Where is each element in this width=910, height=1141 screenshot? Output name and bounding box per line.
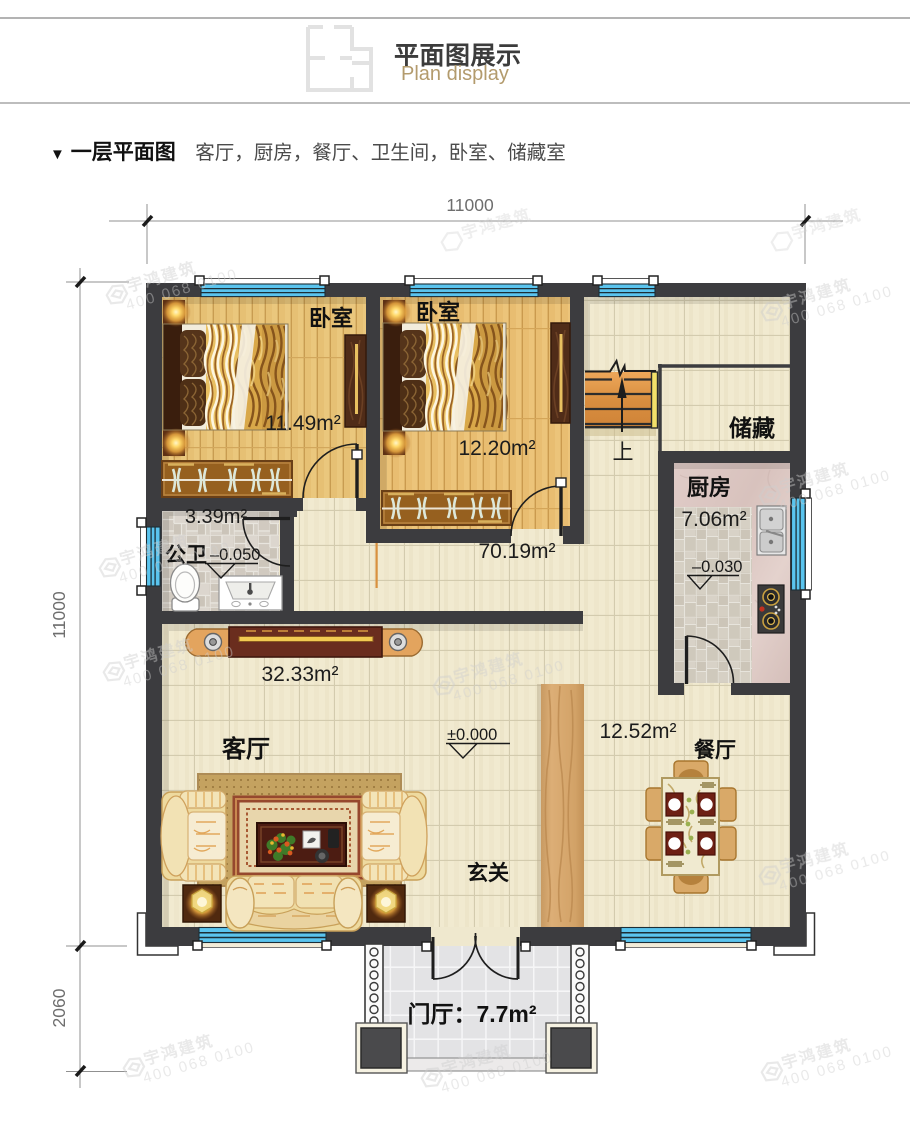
svg-text:±0.000: ±0.000	[447, 726, 497, 744]
svg-text:餐厅: 餐厅	[694, 738, 736, 762]
svg-text:玄关: 玄关	[467, 861, 509, 885]
svg-text:70.19m²: 70.19m²	[478, 540, 555, 563]
svg-text:卧室: 卧室	[309, 306, 353, 331]
svg-text:3.39m²: 3.39m²	[185, 506, 248, 528]
svg-text:11000: 11000	[49, 591, 69, 639]
svg-text:12.52m²: 12.52m²	[599, 720, 676, 743]
svg-text:上: 上	[613, 441, 634, 464]
svg-text:12.20m²: 12.20m²	[458, 437, 535, 460]
svg-text:32.33m²: 32.33m²	[261, 663, 338, 686]
svg-text:7.06m²: 7.06m²	[681, 508, 746, 531]
svg-text:卧室: 卧室	[416, 300, 460, 325]
svg-text:宇鸿建筑: 宇鸿建筑	[790, 205, 864, 243]
svg-text:–0.030: –0.030	[692, 558, 742, 576]
svg-text:储藏: 储藏	[729, 415, 775, 441]
svg-text:11.49m²: 11.49m²	[265, 412, 340, 435]
svg-text:11000: 11000	[446, 195, 494, 215]
svg-text:2060: 2060	[49, 988, 69, 1027]
svg-text:客厅: 客厅	[222, 735, 270, 763]
svg-text:厨房: 厨房	[687, 475, 731, 500]
svg-text:门厅：7.7m²: 门厅：7.7m²	[407, 1001, 536, 1027]
